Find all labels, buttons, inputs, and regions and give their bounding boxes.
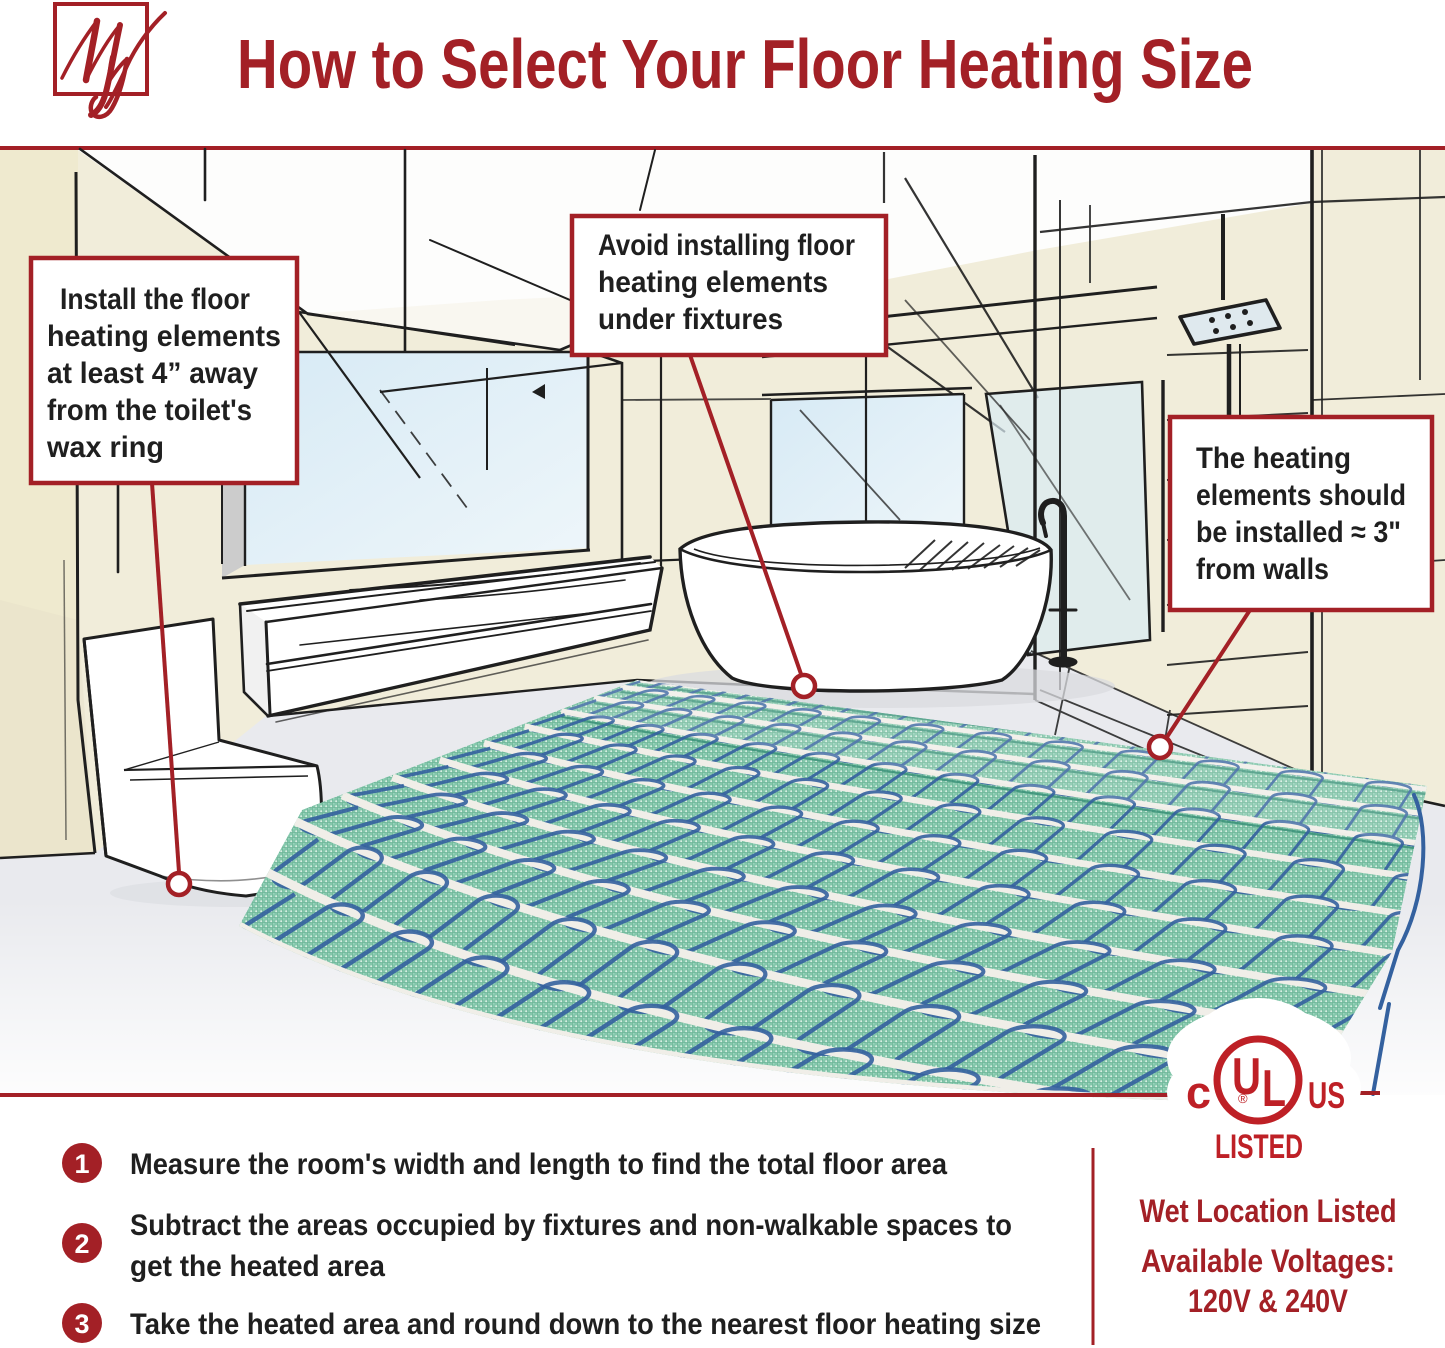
svg-text:be installed ≈ 3": be installed ≈ 3" [1196,516,1401,549]
svg-text:The heating: The heating [1196,442,1351,475]
svg-text:LISTED: LISTED [1215,1128,1303,1166]
svg-text:get the heated area: get the heated area [130,1250,385,1283]
svg-text:wax ring: wax ring [46,431,164,464]
svg-text:heating elements: heating elements [47,320,281,353]
svg-text:1: 1 [74,1149,89,1179]
svg-text:from the toilet's: from the toilet's [47,394,252,427]
svg-text:from walls: from walls [1196,553,1329,586]
svg-text:Take the heated area and round: Take the heated area and round down to t… [130,1308,1041,1341]
svg-text:3: 3 [74,1309,89,1339]
svg-text:elements should: elements should [1196,479,1406,512]
svg-text:under fixtures: under fixtures [598,303,783,336]
svg-text:c: c [1186,1067,1211,1118]
svg-text:Install the floor: Install the floor [60,283,250,316]
svg-text:120V & 240V: 120V & 240V [1188,1283,1349,1319]
svg-text:Avoid installing floor: Avoid installing floor [598,229,855,262]
svg-text:How to Select Your Floor Heati: How to Select Your Floor Heating Size [237,25,1253,103]
svg-text:Subtract the areas occupied by: Subtract the areas occupied by fixtures … [130,1209,1012,1242]
svg-text:Wet Location Listed: Wet Location Listed [1140,1193,1397,1229]
svg-text:2: 2 [74,1229,89,1259]
svg-text:Available Voltages:: Available Voltages: [1141,1243,1395,1279]
svg-text:®: ® [1238,1091,1248,1106]
svg-text:L: L [1262,1060,1286,1118]
svg-text:at least 4” away: at least 4” away [47,357,258,390]
svg-text:US: US [1308,1075,1345,1116]
svg-text:Measure the room's width and l: Measure the room's width and length to f… [130,1148,947,1181]
svg-text:heating elements: heating elements [598,266,828,299]
